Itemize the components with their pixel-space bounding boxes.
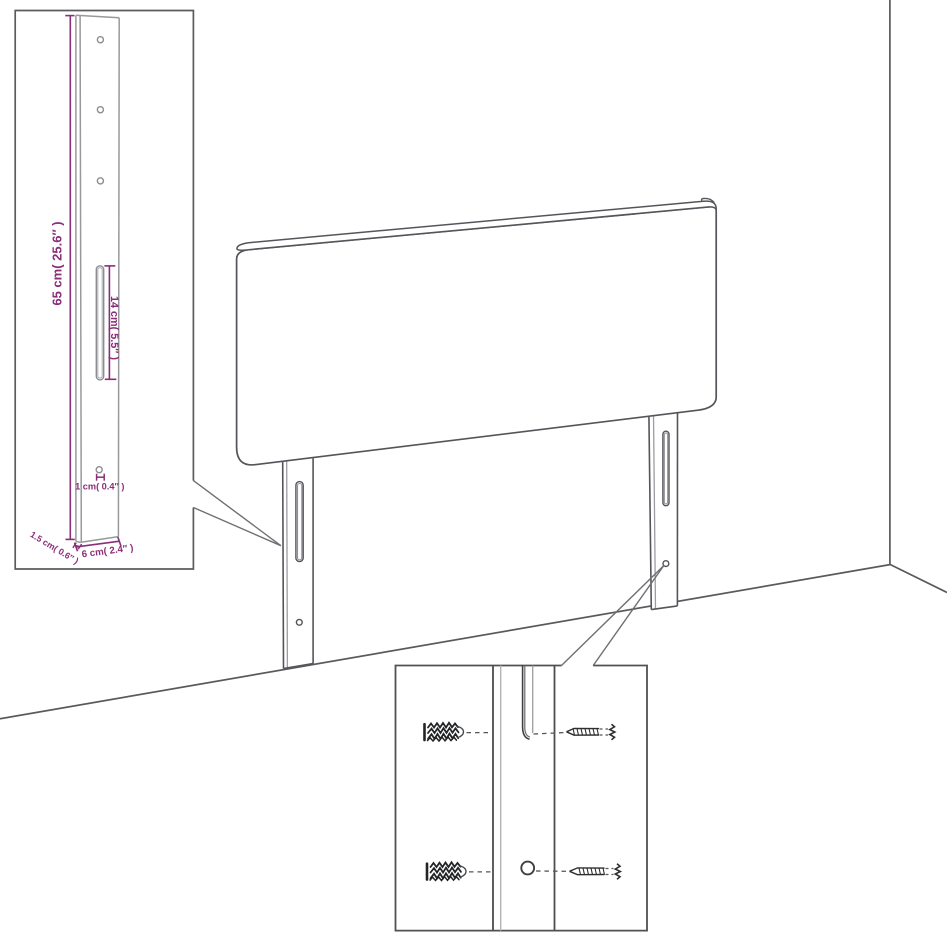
svg-text:1 cm( 0.4″ ): 1 cm( 0.4″ ) (75, 482, 124, 492)
svg-text:14 cm( 5.5″ ): 14 cm( 5.5″ ) (108, 296, 120, 360)
svg-text:65 cm( 25.6″ ): 65 cm( 25.6″ ) (50, 221, 65, 305)
